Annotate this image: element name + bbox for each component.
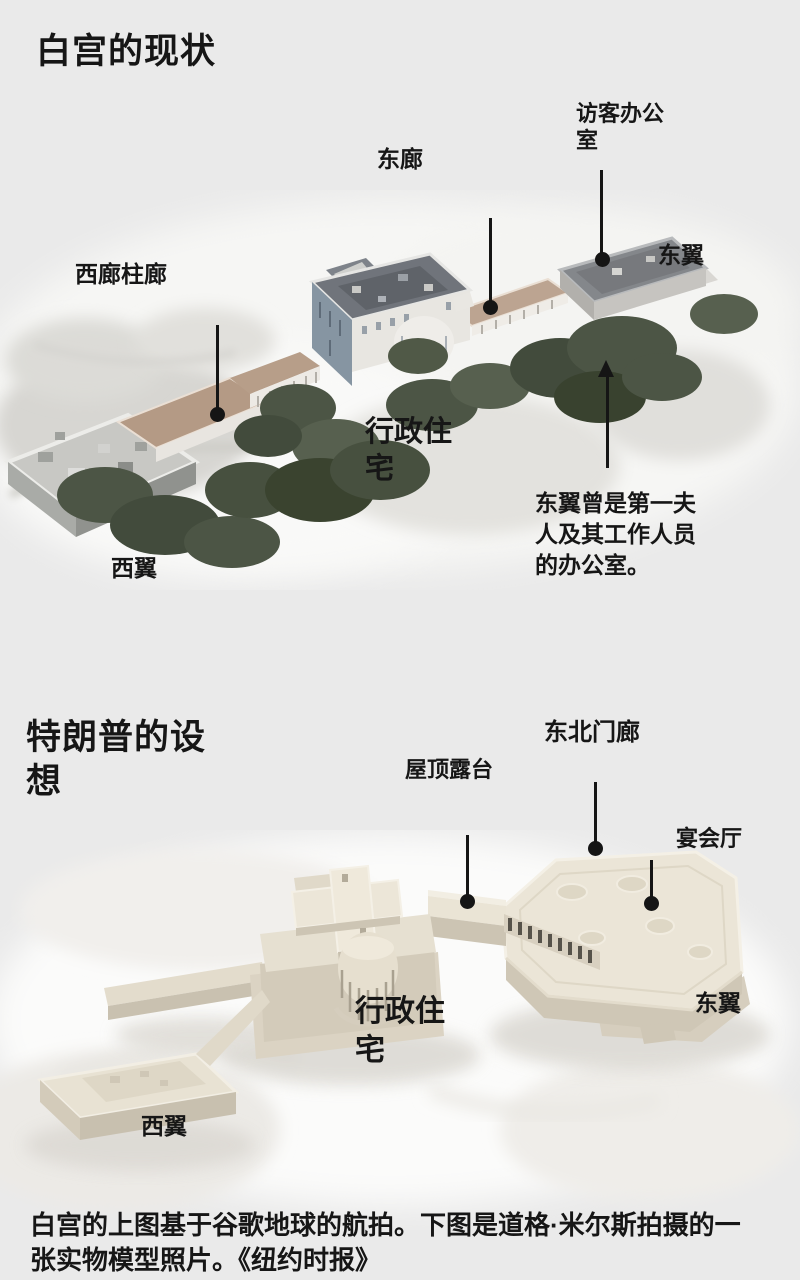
leader-rooftop-terrace — [466, 835, 469, 897]
arrow-up-icon — [598, 360, 614, 377]
dot-east-colonnade — [483, 300, 498, 315]
east-wing-note: 东翼曾是第一夫人及其工作人员的办公室。 — [535, 488, 711, 581]
label-east-colonnade: 东廊 — [377, 145, 423, 174]
dot-ballroom — [644, 896, 659, 911]
label-west-wing-proposal: 西翼 — [141, 1112, 187, 1141]
section-proposal-title: 特朗普的设想 — [26, 716, 212, 804]
infographic-canvas: 白宫的现状 — [0, 0, 800, 1280]
label-visitor-office: 访客办公室 — [576, 100, 672, 154]
arrow-east-wing-note-line — [606, 376, 609, 468]
label-east-wing-current: 东翼 — [658, 241, 704, 270]
leader-visitor-office — [600, 170, 603, 254]
leader-east-colonnade — [489, 218, 492, 304]
label-executive-residence-proposal: 行政住宅 — [355, 992, 459, 1070]
dot-northeast-portico — [588, 841, 603, 856]
label-executive-residence-current: 行政住宅 — [365, 414, 467, 488]
label-rooftop-terrace: 屋顶露台 — [405, 755, 493, 784]
label-northeast-portico: 东北门廊 — [544, 718, 640, 747]
label-east-wing-proposal: 东翼 — [695, 989, 741, 1018]
label-ballroom: 宴会厅 — [676, 824, 742, 853]
leader-northeast-portico — [594, 782, 597, 844]
label-west-wing-current: 西翼 — [111, 554, 157, 583]
leader-ballroom — [650, 860, 653, 900]
dot-west-colonnade — [210, 407, 225, 422]
photo-caption: 白宫的上图基于谷歌地球的航拍。下图是道格·米尔斯拍摄的一张实物模型照片。《纽约时… — [30, 1208, 748, 1278]
dot-visitor-office — [595, 252, 610, 267]
label-west-colonnade: 西廊柱廊 — [75, 260, 167, 289]
section-current-title: 白宫的现状 — [36, 30, 736, 74]
dot-rooftop-terrace — [460, 894, 475, 909]
leader-west-colonnade — [216, 325, 219, 411]
